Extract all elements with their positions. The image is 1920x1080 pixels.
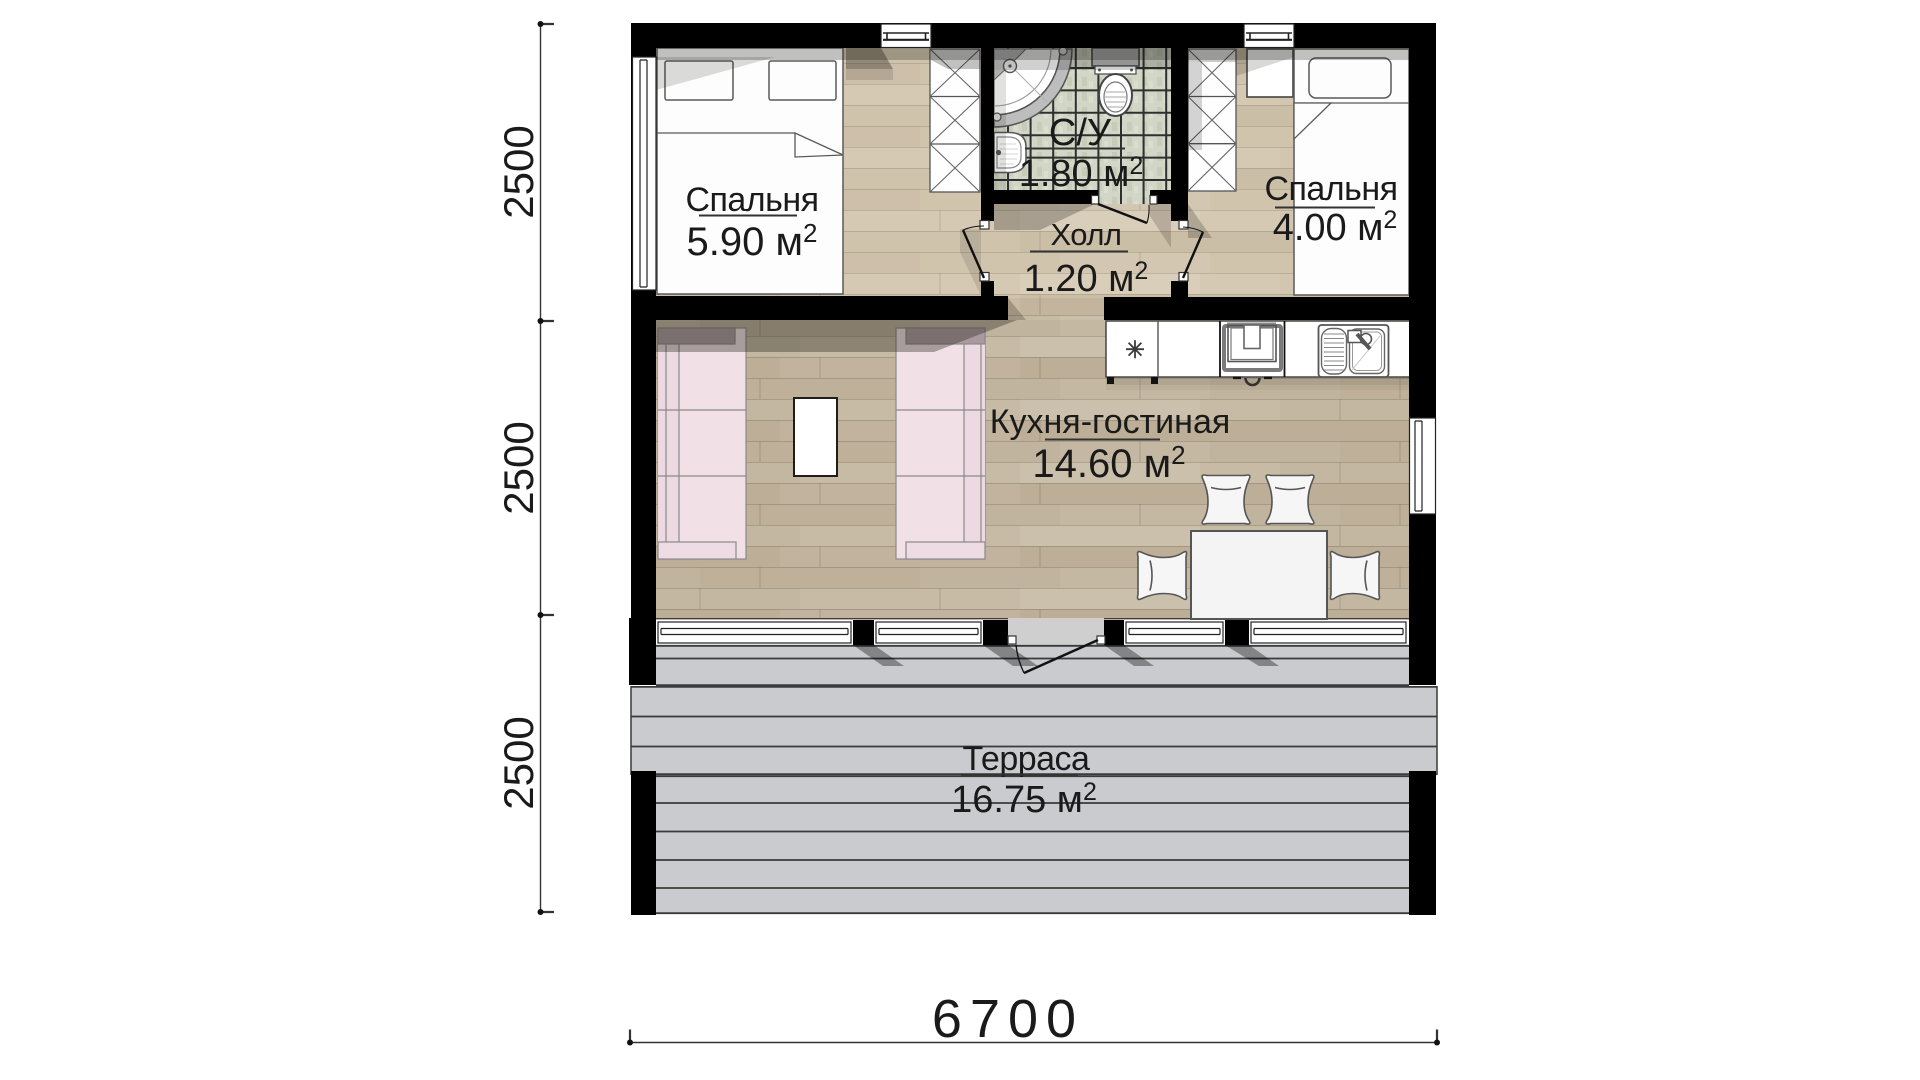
svg-text:Спальня: Спальня [685,181,818,219]
svg-text:Терраса: Терраса [963,740,1090,778]
svg-text:2500: 2500 [495,125,542,218]
svg-text:Холл: Холл [1050,217,1121,252]
svg-text:5.90 м2: 5.90 м2 [687,218,818,264]
svg-text:4.00 м2: 4.00 м2 [1273,206,1398,249]
svg-text:16.75 м2: 16.75 м2 [951,778,1097,821]
svg-text:Кухня-гостиная: Кухня-гостиная [990,403,1231,441]
svg-text:14.60 м2: 14.60 м2 [1032,440,1185,486]
svg-text:6700: 6700 [932,989,1084,1049]
svg-text:2500: 2500 [495,421,542,514]
svg-text:Спальня: Спальня [1264,170,1397,208]
svg-text:1.20 м2: 1.20 м2 [1024,257,1149,300]
svg-text:2500: 2500 [495,716,542,809]
svg-text:1.80 м2: 1.80 м2 [1019,152,1144,195]
